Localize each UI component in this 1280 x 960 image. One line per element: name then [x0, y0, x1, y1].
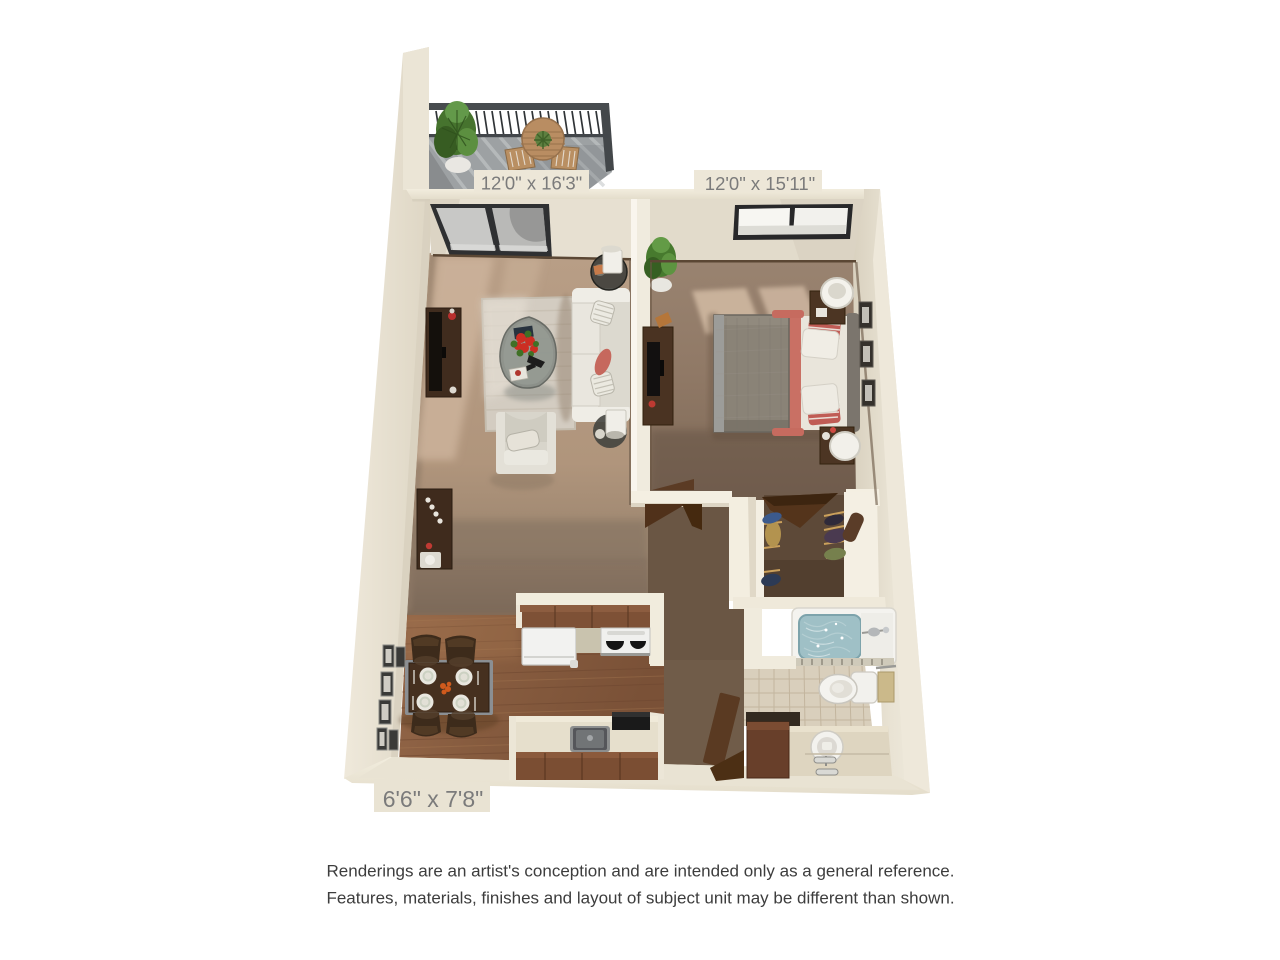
svg-text:Renderings are an artist's con: Renderings are an artist's conception an… — [327, 862, 955, 881]
svg-text:12'0" x 16'3": 12'0" x 16'3" — [481, 173, 582, 194]
svg-text:6'6" x 7'8": 6'6" x 7'8" — [383, 786, 484, 812]
svg-text:12'0" x 15'11": 12'0" x 15'11" — [705, 173, 815, 194]
svg-text:Features, materials, finishes: Features, materials, finishes and layout… — [326, 889, 954, 908]
